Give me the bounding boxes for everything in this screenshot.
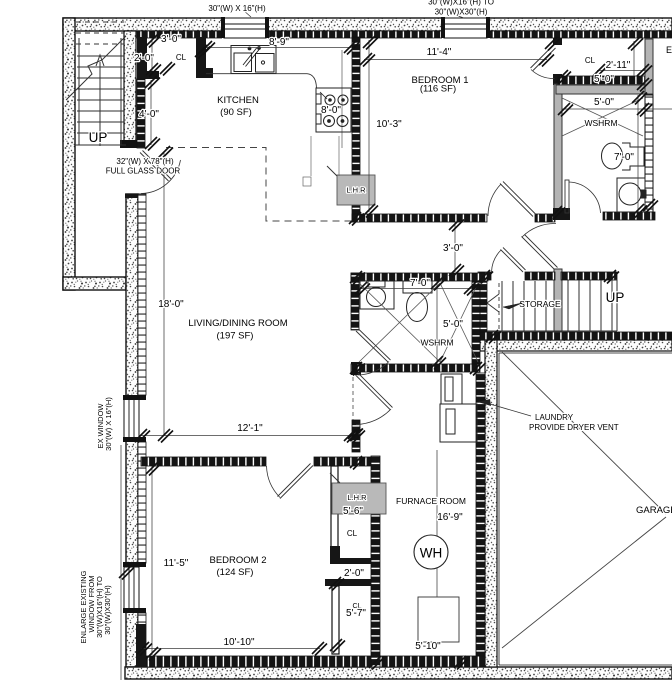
svg-text:FURNACE ROOM: FURNACE ROOM	[396, 496, 466, 506]
svg-text:CL: CL	[347, 529, 358, 538]
svg-text:2'-0": 2'-0"	[344, 568, 364, 579]
svg-text:WSHRM: WSHRM	[584, 118, 617, 128]
svg-text:E: E	[666, 45, 672, 55]
svg-text:18'-0": 18'-0"	[158, 299, 184, 310]
svg-text:WH: WH	[420, 546, 443, 561]
svg-text:FULL GLASS DOOR: FULL GLASS DOOR	[106, 167, 181, 176]
svg-text:3'-0": 3'-0"	[443, 243, 463, 254]
svg-text:5'-0": 5'-0"	[594, 74, 614, 85]
svg-text:7'-0": 7'-0"	[410, 278, 430, 289]
svg-text:LAUNDRY: LAUNDRY	[535, 413, 574, 422]
svg-text:30"(W)X30"(H): 30"(W)X30"(H)	[103, 585, 112, 635]
svg-text:5'-7": 5'-7"	[346, 608, 366, 619]
svg-text:GARAGE: GARAGE	[636, 505, 672, 516]
svg-text:2'-0": 2'-0"	[134, 53, 154, 64]
svg-text:30"(W)X30"(H): 30"(W)X30"(H)	[435, 8, 488, 17]
svg-text:5'-0": 5'-0"	[443, 319, 463, 330]
svg-text:30"(W) X 16"(H): 30"(W) X 16"(H)	[208, 4, 266, 13]
svg-text:32"(W) X 78"(H): 32"(W) X 78"(H)	[116, 157, 174, 166]
svg-text:(116 SF): (116 SF)	[420, 84, 456, 95]
svg-text:30"(W)X16"(H) TO: 30"(W)X16"(H) TO	[428, 0, 494, 7]
svg-text:11'-4": 11'-4"	[427, 47, 452, 58]
svg-text:5'-10": 5'-10"	[415, 641, 441, 652]
svg-text:2'-11": 2'-11"	[606, 60, 631, 71]
svg-text:PROVIDE DRYER VENT: PROVIDE DRYER VENT	[529, 423, 619, 432]
svg-text:UP: UP	[606, 290, 625, 305]
svg-text:(124 SF): (124 SF)	[217, 567, 254, 578]
svg-text:L.H.R: L.H.R	[346, 186, 366, 195]
svg-text:BEDROOM 2: BEDROOM 2	[209, 555, 266, 566]
svg-text:11'-5": 11'-5"	[164, 558, 189, 569]
svg-text:5'-6": 5'-6"	[343, 506, 363, 517]
svg-text:CL: CL	[585, 56, 596, 65]
svg-text:WSHRM: WSHRM	[420, 338, 453, 348]
svg-text:16'-9": 16'-9"	[437, 512, 463, 523]
svg-text:12'-1": 12'-1"	[237, 423, 263, 434]
svg-text:30"(W) X 16"(H): 30"(W) X 16"(H)	[104, 397, 113, 451]
svg-text:L.H.R: L.H.R	[347, 493, 367, 502]
svg-text:7'-0": 7'-0"	[614, 152, 634, 163]
svg-text:(90 SF): (90 SF)	[220, 107, 252, 118]
svg-text:8'-9": 8'-9"	[269, 37, 289, 48]
svg-text:LIVING/DINING ROOM: LIVING/DINING ROOM	[188, 318, 287, 329]
svg-text:5'-0": 5'-0"	[594, 97, 614, 108]
svg-text:KITCHEN: KITCHEN	[217, 95, 259, 106]
svg-text:STORAGE: STORAGE	[519, 299, 561, 309]
svg-text:UP: UP	[89, 130, 108, 145]
svg-text:8'-0": 8'-0"	[321, 105, 341, 116]
svg-text:(197 SF): (197 SF)	[217, 331, 254, 342]
svg-text:10'-3": 10'-3"	[376, 119, 402, 130]
svg-text:CL: CL	[176, 53, 187, 62]
svg-text:3'-0": 3'-0"	[161, 34, 181, 45]
svg-text:4'-0": 4'-0"	[139, 109, 159, 120]
svg-text:10'-10": 10'-10"	[223, 637, 254, 648]
